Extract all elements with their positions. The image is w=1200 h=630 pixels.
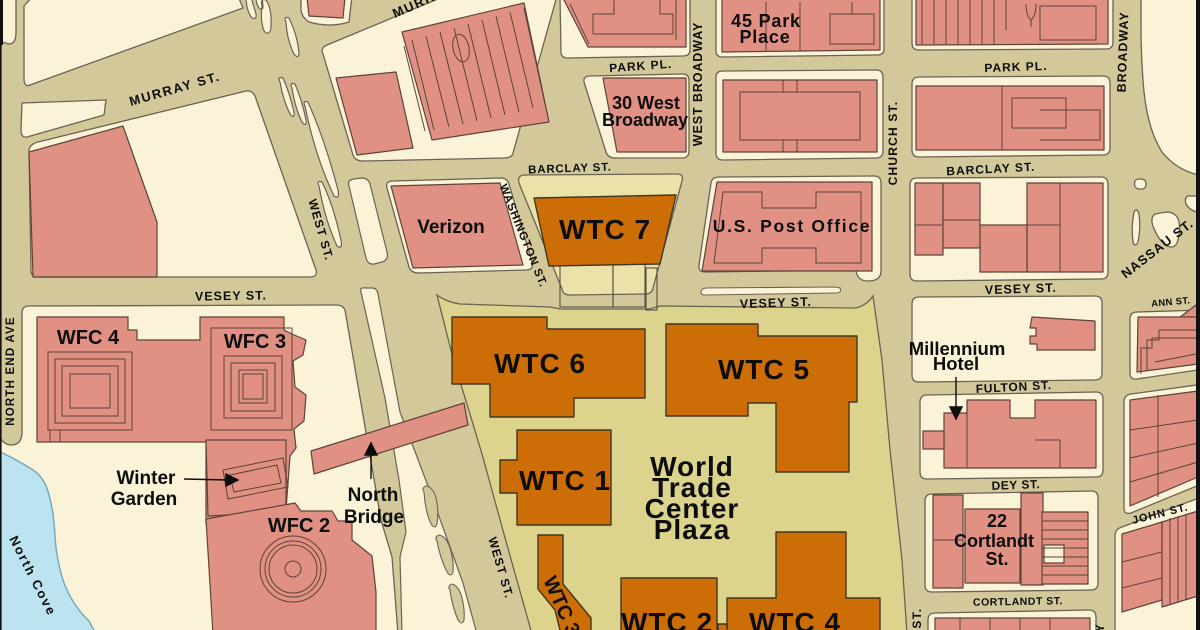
- svg-text:CORTLANDT ST.: CORTLANDT ST.: [973, 595, 1063, 609]
- svg-text:CHURCH ST.: CHURCH ST.: [886, 101, 900, 186]
- svg-text:WTC 7: WTC 7: [559, 214, 651, 245]
- svg-text:Garden: Garden: [111, 489, 178, 510]
- svg-text:Broadway: Broadway: [602, 110, 688, 130]
- svg-text:BROADWAY: BROADWAY: [1115, 11, 1132, 93]
- svg-text:Verizon: Verizon: [417, 217, 485, 238]
- svg-text:WTC 2: WTC 2: [621, 607, 713, 630]
- svg-text:WFC 3: WFC 3: [224, 331, 286, 353]
- svg-text:Bridge: Bridge: [344, 507, 404, 528]
- svg-text:Cortlandt: Cortlandt: [954, 531, 1034, 551]
- svg-text:VESEY ST.: VESEY ST.: [985, 281, 1057, 298]
- svg-text:WTC 6: WTC 6: [494, 348, 586, 379]
- svg-text:VESEY ST.: VESEY ST.: [740, 295, 812, 312]
- svg-text:WFC 2: WFC 2: [268, 515, 330, 537]
- svg-text:North: North: [348, 485, 399, 506]
- svg-text:Place: Place: [739, 27, 790, 47]
- svg-text:St.: St.: [985, 549, 1008, 569]
- svg-text:CHURCH ST.: CHURCH ST.: [910, 608, 924, 630]
- svg-text:AY: AY: [1093, 624, 1107, 630]
- svg-text:Plaza: Plaza: [654, 514, 731, 545]
- svg-text:PARK PL.: PARK PL.: [984, 59, 1048, 75]
- svg-text:VESEY ST.: VESEY ST.: [195, 288, 267, 303]
- svg-text:WTC 4: WTC 4: [749, 607, 841, 630]
- svg-text:U.S. Post Office: U.S. Post Office: [713, 216, 871, 236]
- svg-text:WTC 5: WTC 5: [718, 354, 810, 385]
- svg-text:WFC 4: WFC 4: [57, 327, 120, 349]
- svg-text:NORTH END AVE: NORTH END AVE: [5, 316, 17, 426]
- svg-text:WTC 1: WTC 1: [519, 465, 611, 496]
- svg-text:WEST BROADWAY: WEST BROADWAY: [691, 22, 705, 146]
- svg-text:22: 22: [987, 511, 1007, 531]
- svg-text:DEY ST.: DEY ST.: [991, 477, 1040, 493]
- svg-text:Hotel: Hotel: [933, 353, 979, 374]
- svg-text:Winter: Winter: [117, 468, 177, 489]
